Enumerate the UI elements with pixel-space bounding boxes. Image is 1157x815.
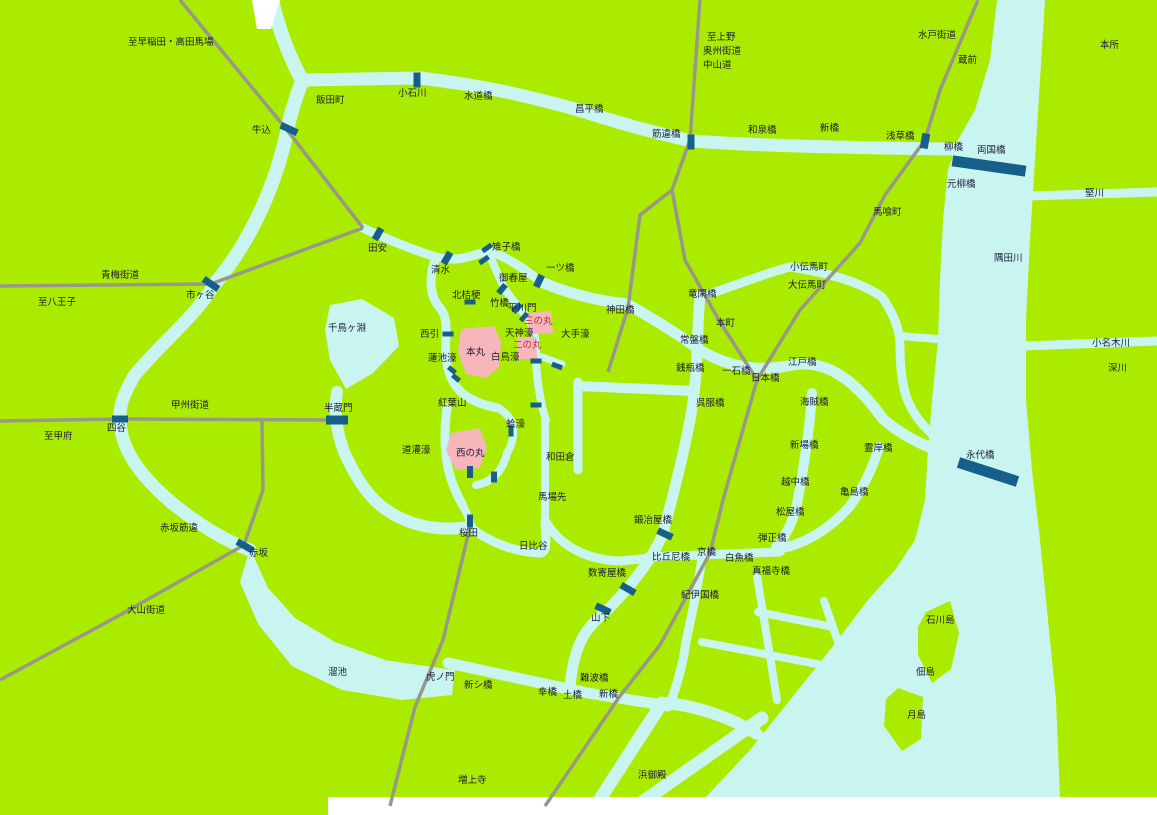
map-label: 松屋橋 [776,506,805,518]
map-label: 新橋 [820,122,840,134]
map-label: 比丘尼橋 [652,551,691,563]
bridge-nishinomaru-2 [491,472,497,483]
map-label: 竹橋 [490,297,510,309]
map-label: 昌平橋 [575,103,604,115]
map-label: 至上野 [707,32,736,43]
map-label: 江戸橋 [788,356,817,368]
map-label: 赤坂筋違 [160,522,199,534]
map-label: 御春屋 [499,272,528,284]
hamacho-branch [900,336,962,341]
map-label: 土橋 [563,689,583,701]
map-label: 常盤橋 [680,334,709,346]
map-label: 越中橋 [781,476,810,488]
map-label: 小伝馬町 [790,262,829,273]
map-label: 月島 [907,709,926,721]
map-label: 鍛冶屋橋 [634,514,673,526]
map-label: 至八王子 [38,297,77,308]
edo-map-svg: 至早稲田・高田馬場飯田町牛込小石川水道橋昌平橋筋違橋至上野奥州街道中山道水戸街道… [0,0,1157,815]
map-label: 京橋 [697,546,717,558]
bridge-ote-1 [531,359,542,364]
map-label: 半蔵門 [324,402,353,414]
map-label: 日本橋 [751,372,780,384]
map-label: 虎ノ門 [426,671,455,683]
map-edge-bottom [328,797,1157,815]
map-label: 市ヶ谷 [186,289,215,301]
map-label: 飯田町 [316,94,345,106]
map-label: 石川島 [926,614,955,626]
map-label: 赤坂 [249,548,269,559]
map-label: 千鳥ヶ淵 [328,322,366,334]
map-label: 本所 [1100,39,1120,51]
map-label: 堅川 [1085,188,1104,199]
map-label: 海賊橋 [800,396,829,408]
map-label: 竜閑橋 [688,288,717,300]
map-label: 馬場先 [538,491,567,503]
map-label: 蔵前 [958,54,977,66]
map-label: 平川門 [508,303,537,314]
map-label: 桜田 [459,527,478,539]
map-label: 霊岸橋 [864,442,893,454]
map-label: 亀島橋 [840,486,869,498]
road-koshu-kaido [0,419,336,421]
map-label: 一石橋 [722,365,751,377]
map-label: 道灌濠 [402,444,431,456]
map-label: 田安 [368,242,387,254]
map-label: 筋違橋 [652,128,681,140]
map-label: 大山街道 [127,604,166,616]
map-label: 数寄屋橋 [588,567,627,579]
map-label: 中山道 [703,59,732,71]
map-label: 青梅街道 [101,269,140,281]
map-label: 小名木川 [1092,337,1130,349]
map-label: 銭瓶橋 [676,362,705,374]
map-label: 二の丸 [513,339,542,351]
map-label: 馬喰町 [873,206,902,218]
map-label: 新橋 [599,688,619,700]
map-label: 西引 [420,329,439,340]
map-label: 至早稲田・高田馬場 [128,36,214,48]
map-label: 一ツ橋 [546,262,575,274]
map-label: 雉子橋 [492,241,521,253]
map-label: 白鳥濠 [491,351,520,363]
map-label: 紀伊国橋 [681,589,720,601]
bridge-koishikawa [414,73,421,88]
map-label: 呉服橋 [696,397,725,409]
map-label: 日比谷 [519,540,548,552]
map-label: 本町 [716,317,736,329]
map-label: 白魚橋 [725,552,754,564]
map-label: 奥州街道 [703,45,742,57]
bridge-sujikaibashi [688,135,695,150]
map-label: 紅葉山 [438,397,467,409]
map-label: 四谷 [107,423,127,434]
map-label: 蓮池濠 [428,352,457,364]
bridge-nishibiki [443,332,454,337]
map-label: 三の丸 [524,315,553,327]
bridge-hanzomon [326,416,348,425]
map-label: 和泉橋 [748,124,777,136]
map-label: 柳橋 [944,141,964,153]
map-label: 天神濠 [505,327,534,339]
map-label: 水戸街道 [918,29,957,41]
map-label: 山下 [591,613,610,624]
map-label: 西の丸 [456,447,485,459]
map-label: 深川 [1108,363,1127,374]
map-label: 永代橋 [966,449,995,461]
map-label: 元柳橋 [947,178,976,190]
onagigawa-canal [1024,341,1157,346]
map-label: 溜池 [328,666,348,678]
map-label: 佃島 [916,666,935,678]
map-label: 浅草橋 [886,130,915,142]
map-label: 和田倉 [546,451,575,463]
map-label: 大伝馬町 [788,279,827,291]
bridge-nishinomaru-1 [467,466,473,478]
map-label: 真福寺橋 [752,565,791,577]
map-label: 至甲府 [44,430,73,442]
bridge-ote-3 [531,403,542,408]
edo-map-stage: 至早稲田・高田馬場飯田町牛込小石川水道橋昌平橋筋違橋至上野奥州街道中山道水戸街道… [0,0,1157,815]
map-label: 甲州街道 [171,399,210,411]
map-label: 難波橋 [580,672,609,684]
bridge-yotsuya [112,416,128,423]
bridge-sakurada [467,515,473,528]
map-label: 北桔梗 [452,289,481,301]
map-label: 神田橋 [606,304,635,316]
map-label: 水道橋 [464,90,493,102]
map-label: 増上寺 [458,774,487,786]
map-label: 清水 [431,264,451,276]
map-label: 幸橋 [538,686,558,698]
map-label: 隅田川 [994,253,1023,264]
map-label: 大手濠 [561,328,590,340]
map-label: 小石川 [398,88,427,99]
map-label: 浜御殿 [638,769,667,781]
map-label: 本丸 [466,346,486,358]
wadakura-connector [578,386,695,391]
map-label: 両国橋 [977,144,1006,156]
map-label: 新シ橋 [464,679,493,691]
map-label: 蛤濠 [506,418,526,430]
map-label: 弾正橋 [758,532,787,544]
map-label: 牛込 [252,124,272,136]
map-label: 新場橋 [790,439,819,451]
